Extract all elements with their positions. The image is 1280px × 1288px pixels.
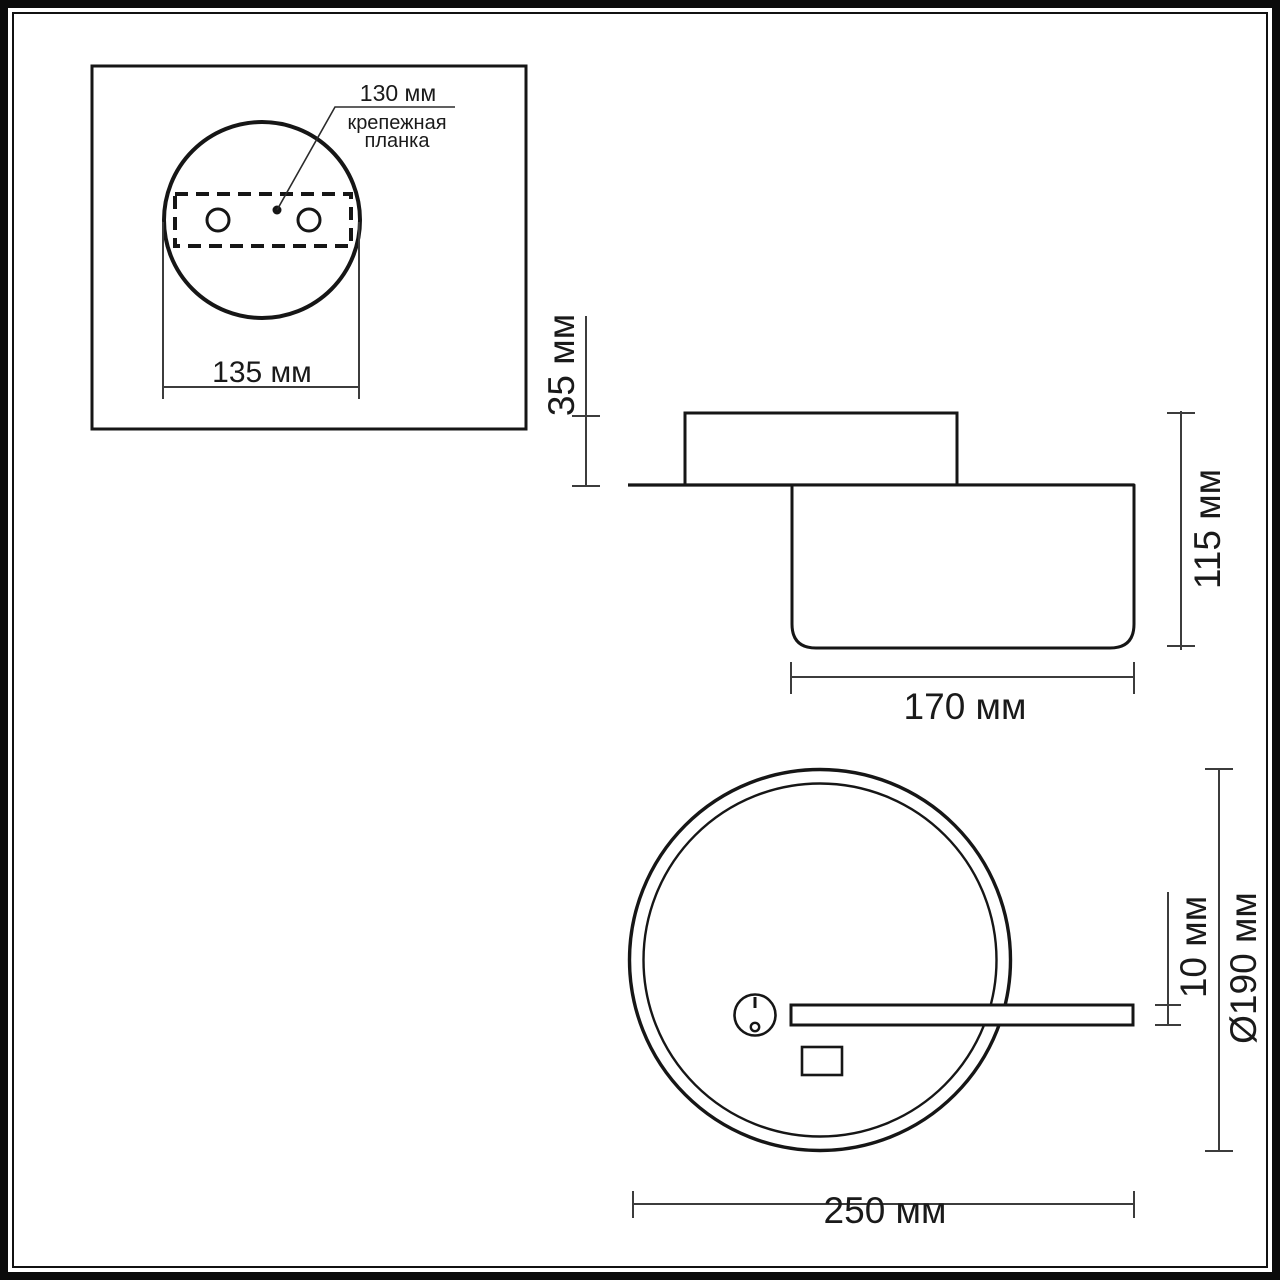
- overall-width-label: 250 мм: [824, 1190, 947, 1231]
- canopy-depth-dimension: 35 мм: [541, 314, 600, 486]
- mount-plate-label-line2: планка: [365, 130, 431, 152]
- bar-thickness-dimension: 10 мм: [1155, 892, 1214, 1025]
- canopy-depth-label: 35 мм: [541, 314, 582, 416]
- lamp-body-side: [792, 485, 1134, 648]
- overall-depth-label: 115 мм: [1187, 469, 1228, 589]
- plate-width-label: 135 мм: [212, 356, 312, 389]
- canopy-box: [685, 413, 957, 485]
- canopy-circle: [164, 122, 360, 318]
- overall-width-dimension: 250 мм: [633, 1190, 1134, 1231]
- driver-box: [802, 1047, 842, 1075]
- detail-inset-view: 130 мм крепежная планка 135 мм: [92, 66, 526, 429]
- overall-depth-dimension: 115 мм: [1167, 411, 1228, 650]
- ring-inner-circle: [644, 784, 997, 1137]
- mount-hole-right: [298, 209, 320, 231]
- plate-width-dimension: 135 мм: [163, 222, 359, 399]
- hole-spacing-label: 130 мм: [360, 80, 436, 106]
- switch-off-mark: [751, 1023, 759, 1031]
- mount-hole-left: [207, 209, 229, 231]
- arm-bar: [791, 1005, 1133, 1025]
- body-width-label: 170 мм: [904, 686, 1027, 727]
- side-view: 35 мм 115 мм 170 мм: [541, 314, 1228, 727]
- front-view: 10 мм Ø190 мм 250 мм: [630, 769, 1265, 1231]
- ring-diameter-label: Ø190 мм: [1223, 892, 1264, 1044]
- bar-thickness-label: 10 мм: [1173, 896, 1214, 998]
- body-width-dimension: 170 мм: [791, 662, 1134, 727]
- technical-drawing: 130 мм крепежная планка 135 мм 35 мм: [8, 8, 1280, 1288]
- ring-outer-circle: [630, 770, 1011, 1151]
- drawing-page: 130 мм крепежная планка 135 мм 35 мм: [0, 0, 1280, 1280]
- mount-plate-dashed-rect: [175, 194, 351, 246]
